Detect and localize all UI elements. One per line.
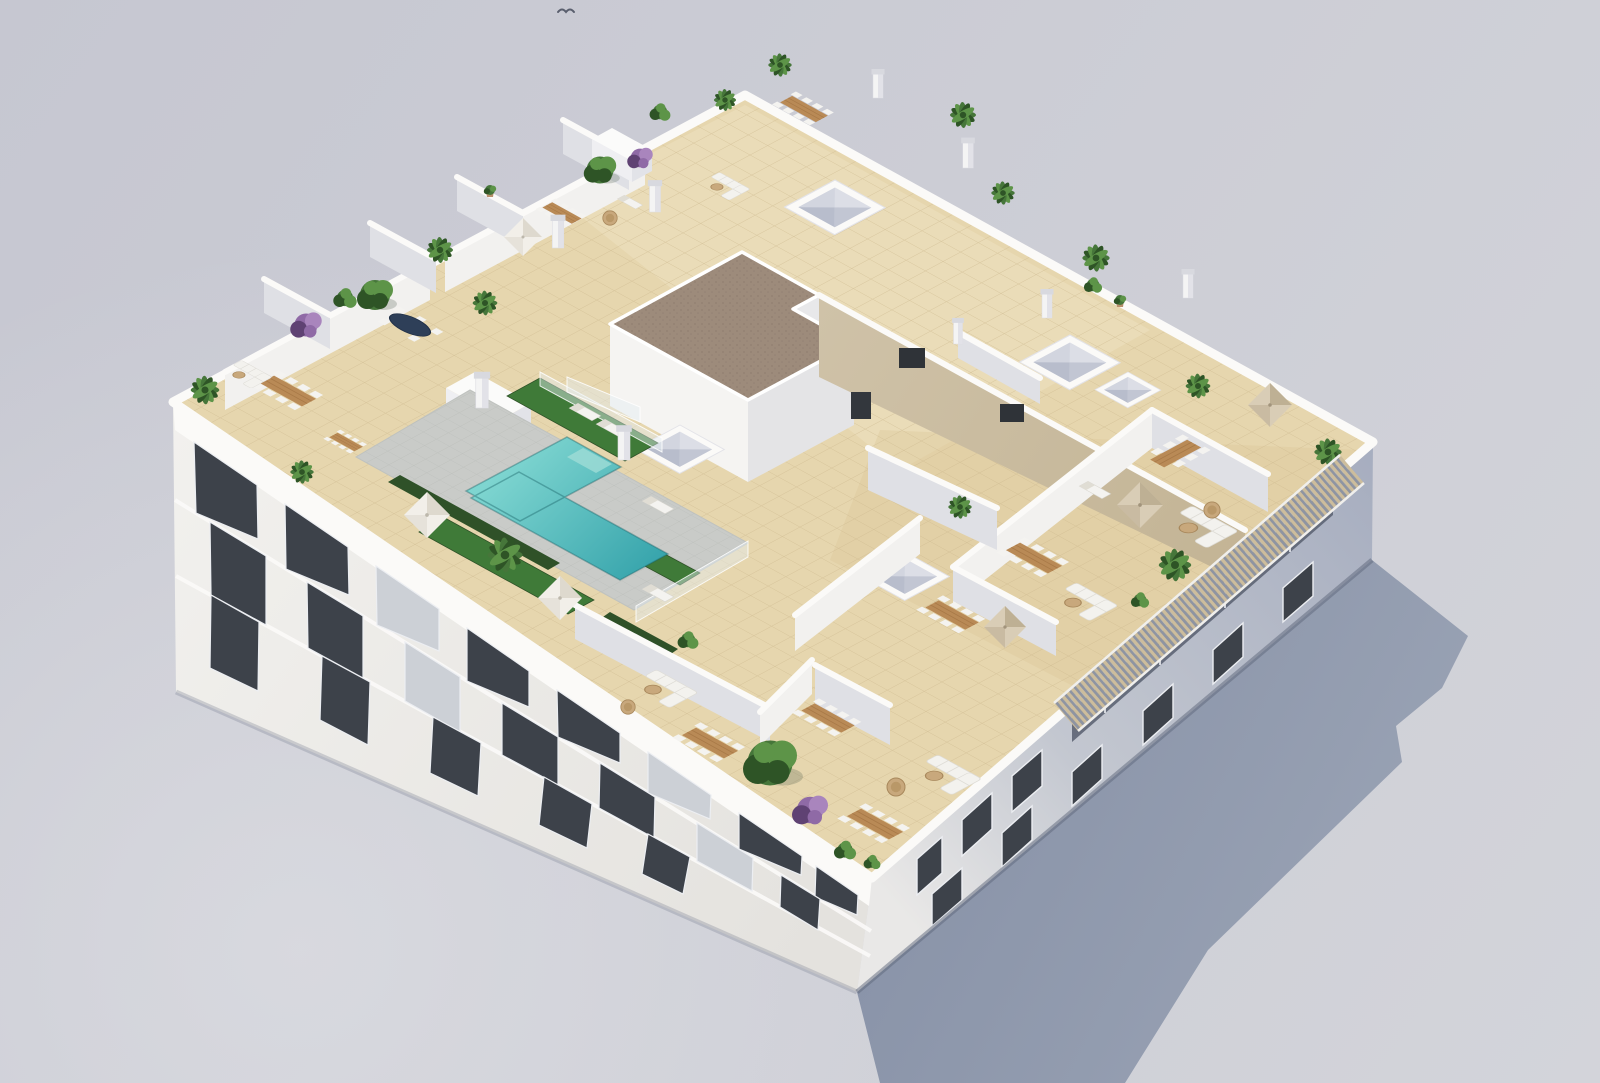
aerial-building-render: [0, 0, 1600, 1083]
wall-window: [899, 348, 925, 368]
round-table: [603, 211, 617, 225]
round-table: [887, 778, 905, 796]
wall-window: [1000, 404, 1024, 422]
round-table: [1204, 502, 1220, 518]
wall-door: [851, 392, 871, 419]
round-table: [621, 700, 635, 714]
